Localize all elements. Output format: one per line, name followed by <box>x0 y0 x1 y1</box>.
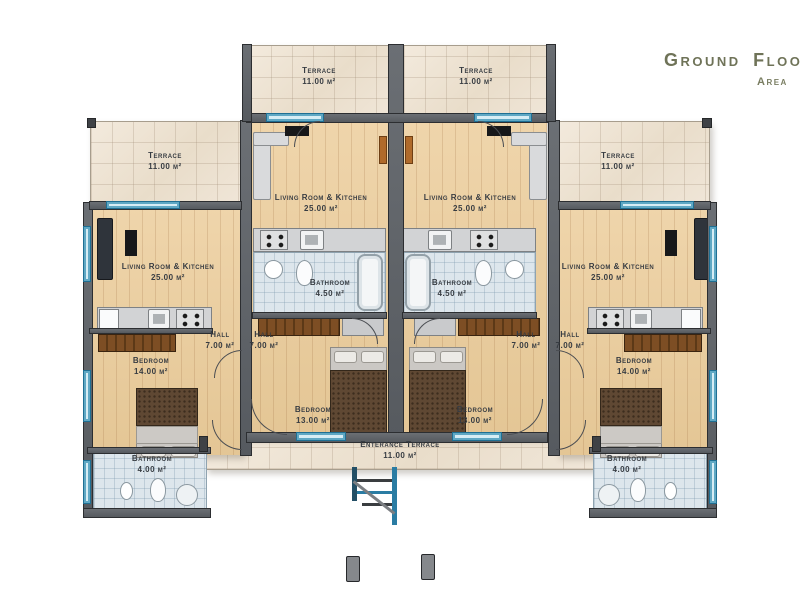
wall-right-wing <box>549 121 559 455</box>
room-name: Bathroom <box>132 454 172 465</box>
room-area: 11.00 m² <box>360 451 440 462</box>
bathtub-icon <box>357 254 383 311</box>
room-name: Hall <box>206 330 235 341</box>
room-area: 7.00 m² <box>206 341 235 352</box>
stair-stringer <box>353 480 396 514</box>
wall-stub <box>88 119 95 127</box>
toilet-icon <box>475 260 492 286</box>
label-terrace-top-right: Terrace 11.00 m² <box>459 66 493 88</box>
label-entrance-terrace: Enterance Terrace 11.00 m² <box>360 440 440 462</box>
wall-partition <box>588 329 710 333</box>
label-bathroom-bottom-left: Bathroom 4.00 m² <box>132 454 172 476</box>
column <box>346 556 360 582</box>
wardrobe <box>624 334 702 352</box>
stair-step <box>357 479 392 482</box>
window <box>83 370 91 422</box>
wall-partition <box>403 313 536 318</box>
label-living-center-right: Living Room & Kitchen 25.00 m² <box>424 193 516 215</box>
room-area: 25.00 m² <box>424 204 516 215</box>
label-living-right: Living Room & Kitchen 25.00 m² <box>562 262 654 284</box>
kitchen-sink-icon <box>428 230 452 250</box>
stair-rail <box>392 467 397 525</box>
room-area: 7.00 m² <box>250 341 279 352</box>
label-bathroom-bottom-right: Bathroom 4.00 m² <box>607 454 647 476</box>
room-name: Terrace <box>459 66 493 77</box>
room-name: Bedroom <box>457 405 493 416</box>
label-terrace-top-left: Terrace 11.00 m² <box>302 66 336 88</box>
label-bedroom-center-right: Bedroom 13.00 m² <box>457 405 493 427</box>
label-bedroom-center-left: Bedroom 13.00 m² <box>295 405 331 427</box>
room-area: 25.00 m² <box>122 273 214 284</box>
bathtub-icon <box>405 254 431 311</box>
label-terrace-side-right: Terrace 11.00 m² <box>601 151 635 173</box>
room-area: 4.50 m² <box>310 289 350 300</box>
room-name: Hall <box>250 330 279 341</box>
window <box>296 432 346 441</box>
kitchen-sink-icon <box>630 309 652 329</box>
basin-icon <box>120 482 133 500</box>
room-name: Terrace <box>601 151 635 162</box>
stair-step <box>357 491 392 494</box>
wall-partition <box>88 448 210 453</box>
window <box>83 226 91 282</box>
column <box>421 554 435 580</box>
window <box>709 460 717 504</box>
plan-subtitle: Area <box>757 76 788 88</box>
bed-sheet <box>600 426 662 444</box>
label-bedroom-left: Bedroom 14.00 m² <box>133 356 169 378</box>
label-living-left: Living Room & Kitchen 25.00 m² <box>122 262 214 284</box>
room-area: 14.00 m² <box>133 367 169 378</box>
label-hall-left: Hall 7.00 m² <box>206 330 235 352</box>
floor-plan-canvas: Terrace 11.00 m² Terrace 11.00 m² Terrac… <box>0 0 800 600</box>
label-hall-center-left: Hall 7.00 m² <box>250 330 279 352</box>
sofa <box>253 132 289 146</box>
wall-left-wing <box>241 121 251 455</box>
window <box>620 201 694 209</box>
stove-icon <box>260 230 288 250</box>
room-name: Living Room & Kitchen <box>562 262 654 273</box>
room-name: Terrace <box>302 66 336 77</box>
label-bathroom-center-right: Bathroom 4.50 m² <box>432 278 472 300</box>
room-area: 13.00 m² <box>457 416 493 427</box>
room-name: Bathroom <box>310 278 350 289</box>
wall-terrace-top-right <box>547 45 555 121</box>
sofa <box>97 218 113 280</box>
wall-partition <box>253 313 386 318</box>
kitchen-sink-icon <box>148 309 170 329</box>
wall-partition <box>590 448 712 453</box>
room-area: 7.00 m² <box>556 341 585 352</box>
fridge-icon <box>99 309 119 329</box>
room-area: 25.00 m² <box>275 204 367 215</box>
room-name: Bathroom <box>607 454 647 465</box>
sofa <box>511 132 547 146</box>
room-area: 13.00 m² <box>295 416 331 427</box>
window <box>452 432 502 441</box>
room-area: 11.00 m² <box>302 77 336 88</box>
wall-center <box>389 45 403 441</box>
fridge-icon <box>681 309 701 329</box>
room-name: Bedroom <box>133 356 169 367</box>
stove-icon <box>596 309 624 329</box>
room-name: Bedroom <box>295 405 331 416</box>
wall-stub <box>593 437 600 451</box>
basin-icon <box>664 482 677 500</box>
room-name: Hall <box>512 330 541 341</box>
label-hall-center-right: Hall 7.00 m² <box>512 330 541 352</box>
label-bedroom-right: Bedroom 14.00 m² <box>616 356 652 378</box>
room-name: Living Room & Kitchen <box>275 193 367 204</box>
room-area: 11.00 m² <box>459 77 493 88</box>
stove-icon <box>470 230 498 250</box>
plan-title: Ground Floo <box>664 50 800 71</box>
basin-icon <box>505 260 524 279</box>
room-area: 7.00 m² <box>512 341 541 352</box>
bed-sheet <box>136 426 198 444</box>
toilet-icon <box>150 478 166 502</box>
room-name: Living Room & Kitchen <box>424 193 516 204</box>
label-terrace-side-left: Terrace 11.00 m² <box>148 151 182 173</box>
wardrobe <box>98 334 176 352</box>
pillow <box>440 351 463 363</box>
kitchen-sink-icon <box>300 230 324 250</box>
room-name: Enterance Terrace <box>360 440 440 451</box>
window <box>709 226 717 282</box>
label-hall-right: Hall 7.00 m² <box>556 330 585 352</box>
room-area: 4.00 m² <box>607 465 647 476</box>
wall-partition <box>90 329 212 333</box>
shower-icon <box>598 484 620 506</box>
room-area: 25.00 m² <box>562 273 654 284</box>
shower-icon <box>176 484 198 506</box>
window <box>106 201 180 209</box>
wall-stub <box>200 437 207 451</box>
label-bathroom-center-left: Bathroom 4.50 m² <box>310 278 350 300</box>
tv-stand <box>379 136 387 164</box>
tv-stand <box>405 136 413 164</box>
basin-icon <box>264 260 283 279</box>
label-living-center-left: Living Room & Kitchen 25.00 m² <box>275 193 367 215</box>
bed-blanket <box>600 388 662 426</box>
room-name: Hall <box>556 330 585 341</box>
room-name: Terrace <box>148 151 182 162</box>
room-name: Bathroom <box>432 278 472 289</box>
pillow <box>361 351 384 363</box>
room-area: 11.00 m² <box>601 162 635 173</box>
stove-icon <box>176 309 204 329</box>
wall-bottom-right <box>590 509 716 517</box>
wall-bottom-left <box>84 509 210 517</box>
room-area: 11.00 m² <box>148 162 182 173</box>
room-name: Bedroom <box>616 356 652 367</box>
wall-stub <box>703 119 711 127</box>
pillow <box>413 351 436 363</box>
bed-blanket <box>330 370 387 433</box>
tv-icon <box>125 230 137 256</box>
wall-terrace-top-left <box>243 45 251 121</box>
room-name: Living Room & Kitchen <box>122 262 214 273</box>
bed-blanket <box>136 388 198 426</box>
window <box>709 370 717 422</box>
room-area: 4.00 m² <box>132 465 172 476</box>
room-area: 14.00 m² <box>616 367 652 378</box>
room-area: 4.50 m² <box>432 289 472 300</box>
toilet-icon <box>630 478 646 502</box>
tv-icon <box>665 230 677 256</box>
window <box>83 460 91 504</box>
pillow <box>334 351 357 363</box>
